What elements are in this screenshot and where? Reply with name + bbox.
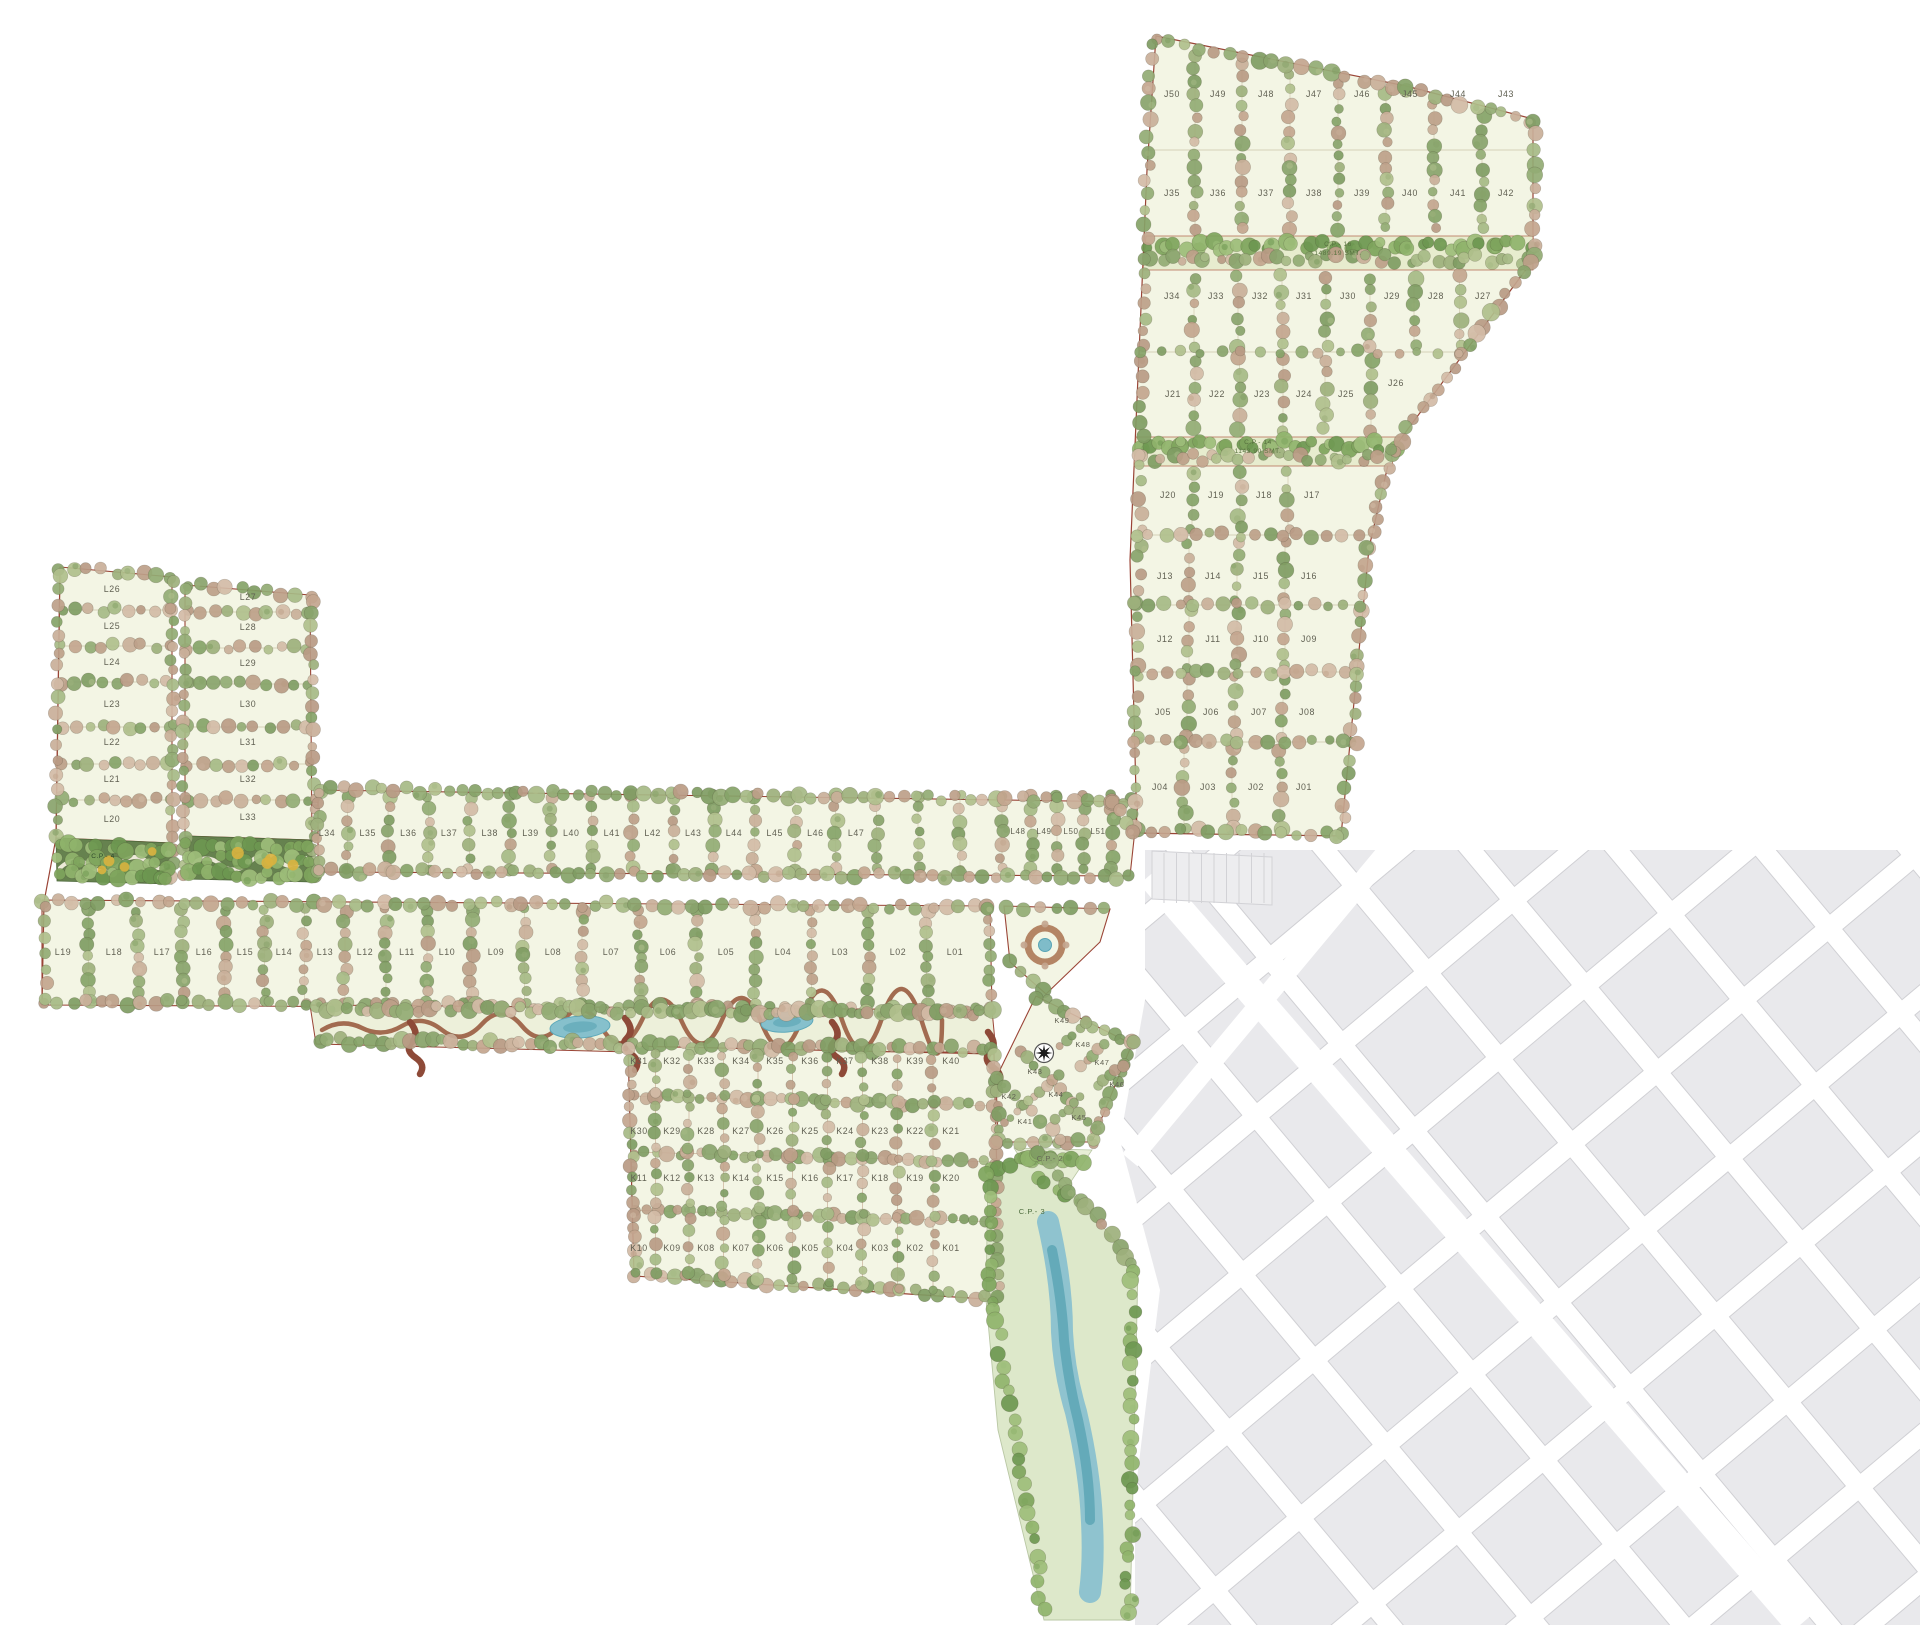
plot-label-K39: K39 bbox=[906, 1056, 923, 1066]
plot-label-J05: J05 bbox=[1155, 707, 1171, 717]
plot-label-K08: K08 bbox=[697, 1243, 714, 1253]
plot-label-J38: J38 bbox=[1306, 188, 1322, 198]
compass-star bbox=[1036, 1045, 1053, 1062]
plot-label-L29: L29 bbox=[240, 658, 256, 668]
plot-label-J20: J20 bbox=[1160, 490, 1176, 500]
plot-label-J13: J13 bbox=[1157, 571, 1173, 581]
plot-label-L21: L21 bbox=[104, 774, 120, 784]
plot-label-J30: J30 bbox=[1340, 291, 1356, 301]
plot-label-L36: L36 bbox=[400, 828, 416, 838]
plot-label-K13: K13 bbox=[697, 1173, 714, 1183]
plot-label-J03: J03 bbox=[1200, 782, 1216, 792]
plot-label-J48: J48 bbox=[1258, 89, 1274, 99]
plot-label-K17: K17 bbox=[836, 1173, 853, 1183]
plot-label-L16: L16 bbox=[196, 947, 212, 957]
plot-label-1489.19 SMT.: 1489.19 SMT. bbox=[1314, 250, 1361, 257]
plot-label-J25: J25 bbox=[1338, 389, 1354, 399]
plot-label-L01: L01 bbox=[947, 947, 963, 957]
plot-label-L14: L14 bbox=[276, 947, 292, 957]
plot-label-L31: L31 bbox=[240, 737, 256, 747]
plot-label-L49: L49 bbox=[1036, 827, 1051, 836]
plot-label-K36: K36 bbox=[801, 1056, 818, 1066]
plot-label-K02: K02 bbox=[906, 1243, 923, 1253]
plot-label-L51: L51 bbox=[1090, 827, 1105, 836]
plot-label-L22: L22 bbox=[104, 737, 120, 747]
plot-label-J50: J50 bbox=[1164, 89, 1180, 99]
plot-label-J01: J01 bbox=[1296, 782, 1312, 792]
plot-label-J33: J33 bbox=[1208, 291, 1224, 301]
plot-label-K40: K40 bbox=[942, 1056, 959, 1066]
plot-label-K12: K12 bbox=[663, 1173, 680, 1183]
plot-label-C.P.- 3: C.P.- 3 bbox=[1019, 1207, 1046, 1216]
plot-label-L44: L44 bbox=[726, 828, 742, 838]
plot-label-L38: L38 bbox=[482, 828, 498, 838]
plot-label-J32: J32 bbox=[1252, 291, 1268, 301]
plot-label-L33: L33 bbox=[240, 812, 256, 822]
plot-label-C.P.- 2: C.P.- 2 bbox=[1037, 1154, 1064, 1163]
plot-label-K25: K25 bbox=[801, 1126, 818, 1136]
plot-label-L26: L26 bbox=[104, 584, 120, 594]
plot-label-L42: L42 bbox=[644, 828, 660, 838]
plot-label-J35: J35 bbox=[1164, 188, 1180, 198]
plot-label-K04: K04 bbox=[836, 1243, 853, 1253]
plot-label-K20: K20 bbox=[942, 1173, 959, 1183]
plot-label-J17: J17 bbox=[1304, 490, 1320, 500]
plot-label-L41: L41 bbox=[604, 828, 620, 838]
site-plan-page: J50J49J48J47J46J45J44J43J35J36J37J38J39J… bbox=[0, 0, 1920, 1625]
plot-label-J27: J27 bbox=[1475, 291, 1491, 301]
plot-label-J07: J07 bbox=[1251, 707, 1267, 717]
plot-label-J36: J36 bbox=[1210, 188, 1226, 198]
plot-label-L17: L17 bbox=[154, 947, 170, 957]
plot-label-K43: K43 bbox=[1027, 1067, 1042, 1076]
plot-label-L03: L03 bbox=[832, 947, 848, 957]
plot-label-L10: L10 bbox=[439, 947, 455, 957]
plot-label-K35: K35 bbox=[766, 1056, 783, 1066]
plot-label-K47: K47 bbox=[1094, 1058, 1109, 1067]
plot-label-J41: J41 bbox=[1450, 188, 1466, 198]
plot-label-K37: K37 bbox=[836, 1056, 853, 1066]
plot-label-L02: L02 bbox=[890, 947, 906, 957]
plot-label-K45: K45 bbox=[1071, 1113, 1086, 1122]
plot-label-L09: L09 bbox=[488, 947, 504, 957]
plot-label-K06: K06 bbox=[766, 1243, 783, 1253]
plot-label-J34: J34 bbox=[1164, 291, 1180, 301]
plot-label-J02: J02 bbox=[1248, 782, 1264, 792]
plot-label-L12: L12 bbox=[357, 947, 373, 957]
site-plan-svg: J50J49J48J47J46J45J44J43J35J36J37J38J39J… bbox=[0, 0, 1920, 1625]
plot-label-J49: J49 bbox=[1210, 89, 1226, 99]
plot-label-J47: J47 bbox=[1306, 89, 1322, 99]
plot-label-J16: J16 bbox=[1301, 571, 1317, 581]
plot-label-K14: K14 bbox=[732, 1173, 749, 1183]
plot-label-J42: J42 bbox=[1498, 188, 1514, 198]
plot-label-K48: K48 bbox=[1075, 1040, 1090, 1049]
plot-label-K31: K31 bbox=[630, 1056, 647, 1066]
plot-label-L23: L23 bbox=[104, 699, 120, 709]
plot-label-L45: L45 bbox=[766, 828, 782, 838]
plot-label-K28: K28 bbox=[697, 1126, 714, 1136]
plot-label-K46: K46 bbox=[1109, 1080, 1124, 1089]
plot-label-L07: L07 bbox=[603, 947, 619, 957]
plot-label-L50: L50 bbox=[1063, 827, 1078, 836]
plot-label-L20: L20 bbox=[104, 814, 120, 824]
plot-label-L13: L13 bbox=[317, 947, 333, 957]
plot-label-C.P.- 16: C.P.- 16 bbox=[1324, 241, 1352, 248]
plot-label-L25: L25 bbox=[104, 621, 120, 631]
plot-label-K44: K44 bbox=[1048, 1090, 1063, 1099]
plot-label-L47: L47 bbox=[848, 828, 864, 838]
plot-label-J29: J29 bbox=[1384, 291, 1400, 301]
plot-label-J46: J46 bbox=[1354, 89, 1370, 99]
plot-label-J04: J04 bbox=[1152, 782, 1168, 792]
plot-label-K23: K23 bbox=[871, 1126, 888, 1136]
plot-label-K34: K34 bbox=[732, 1056, 749, 1066]
plot-label-L32: L32 bbox=[240, 774, 256, 784]
plot-label-K05: K05 bbox=[801, 1243, 818, 1253]
plot-label-L35: L35 bbox=[359, 828, 375, 838]
plot-label-K03: K03 bbox=[871, 1243, 888, 1253]
parcel-strip bbox=[1152, 851, 1272, 905]
plot-label-K24: K24 bbox=[836, 1126, 853, 1136]
plot-label-J37: J37 bbox=[1258, 188, 1274, 198]
plot-label-L15: L15 bbox=[237, 947, 253, 957]
plot-label-J10: J10 bbox=[1253, 634, 1269, 644]
plot-label-J22: J22 bbox=[1209, 389, 1225, 399]
plot-label-K07: K07 bbox=[732, 1243, 749, 1253]
fountain-parcel bbox=[1004, 906, 1110, 994]
plot-label-L28: L28 bbox=[240, 622, 256, 632]
plot-label-L37: L37 bbox=[441, 828, 457, 838]
plot-label-K38: K38 bbox=[871, 1056, 888, 1066]
plot-label-K15: K15 bbox=[766, 1173, 783, 1183]
plot-label-K29: K29 bbox=[663, 1126, 680, 1136]
plot-label-K19: K19 bbox=[906, 1173, 923, 1183]
plot-label-J43: J43 bbox=[1498, 89, 1514, 99]
plot-label-C.P.- 14: C.P.- 14 bbox=[1244, 439, 1272, 446]
plot-label-J06: J06 bbox=[1203, 707, 1219, 717]
plot-label-K33: K33 bbox=[697, 1056, 714, 1066]
plot-label-J44: J44 bbox=[1450, 89, 1466, 99]
plot-label-L43: L43 bbox=[685, 828, 701, 838]
plot-label-J31: J31 bbox=[1296, 291, 1312, 301]
plot-label-J18: J18 bbox=[1256, 490, 1272, 500]
plot-label-K21: K21 bbox=[942, 1126, 959, 1136]
plot-label-K26: K26 bbox=[766, 1126, 783, 1136]
plot-label-L18: L18 bbox=[106, 947, 122, 957]
plot-label-K09: K09 bbox=[663, 1243, 680, 1253]
plot-label-J14: J14 bbox=[1205, 571, 1221, 581]
plot-label-K01: K01 bbox=[942, 1243, 959, 1253]
plot-label-L39: L39 bbox=[522, 828, 538, 838]
plot-label-L46: L46 bbox=[807, 828, 823, 838]
plot-label-K18: K18 bbox=[871, 1173, 888, 1183]
plot-label-K22: K22 bbox=[906, 1126, 923, 1136]
plot-label-J15: J15 bbox=[1253, 571, 1269, 581]
plot-label-J23: J23 bbox=[1254, 389, 1270, 399]
plot-label-L30: L30 bbox=[240, 699, 256, 709]
plot-label-L05: L05 bbox=[718, 947, 734, 957]
plot-label-K27: K27 bbox=[732, 1126, 749, 1136]
plot-label-K30: K30 bbox=[630, 1126, 647, 1136]
plot-label-J28: J28 bbox=[1428, 291, 1444, 301]
plot-label-J26: J26 bbox=[1388, 378, 1404, 388]
plot-label-J12: J12 bbox=[1157, 634, 1173, 644]
plot-label-J11: J11 bbox=[1205, 634, 1220, 644]
plot-label-K32: K32 bbox=[663, 1056, 680, 1066]
plot-label-L06: L06 bbox=[660, 947, 676, 957]
plot-label-K16: K16 bbox=[801, 1173, 818, 1183]
plot-label-L19: L19 bbox=[55, 947, 71, 957]
plot-label-K42: K42 bbox=[1001, 1092, 1016, 1101]
plot-label-L48: L48 bbox=[1010, 827, 1025, 836]
plot-label-K11: K11 bbox=[631, 1173, 648, 1183]
plot-label-J19: J19 bbox=[1208, 490, 1224, 500]
plot-label-C.P.- 4: C.P.- 4 bbox=[91, 853, 115, 860]
plot-label-L27: L27 bbox=[240, 592, 256, 602]
plot-label-J09: J09 bbox=[1301, 634, 1317, 644]
plot-label-L24: L24 bbox=[104, 657, 120, 667]
plot-label-K41: K41 bbox=[1017, 1117, 1032, 1126]
plot-label-L40: L40 bbox=[563, 828, 579, 838]
plot-label-K10: K10 bbox=[630, 1243, 647, 1253]
plot-label-K49: K49 bbox=[1054, 1016, 1069, 1025]
plot-label-J40: J40 bbox=[1402, 188, 1418, 198]
plot-label-L08: L08 bbox=[545, 947, 561, 957]
plot-label-L11: L11 bbox=[399, 947, 415, 957]
plot-label-J08: J08 bbox=[1299, 707, 1315, 717]
plot-label-L04: L04 bbox=[775, 947, 791, 957]
plot-label-1143.90 SMT.: 1143.90 SMT. bbox=[1235, 448, 1282, 455]
plot-label-J39: J39 bbox=[1354, 188, 1370, 198]
plot-label-J21: J21 bbox=[1165, 389, 1181, 399]
plot-label-J24: J24 bbox=[1296, 389, 1312, 399]
plot-label-L34: L34 bbox=[319, 828, 335, 838]
plot-label-J45: J45 bbox=[1402, 89, 1418, 99]
